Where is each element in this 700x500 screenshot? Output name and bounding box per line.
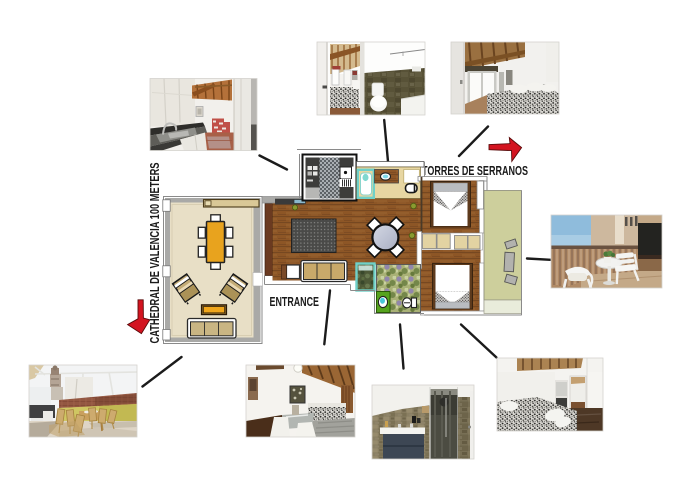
svg-text:ENTRANCE: ENTRANCE	[270, 294, 320, 309]
svg-text:TORRES DE SERRANOS: TORRES DE SERRANOS	[422, 163, 528, 178]
svg-text:CATHEDRAL DE VALENCIA 100 METE: CATHEDRAL DE VALENCIA 100 METERS	[147, 162, 162, 343]
